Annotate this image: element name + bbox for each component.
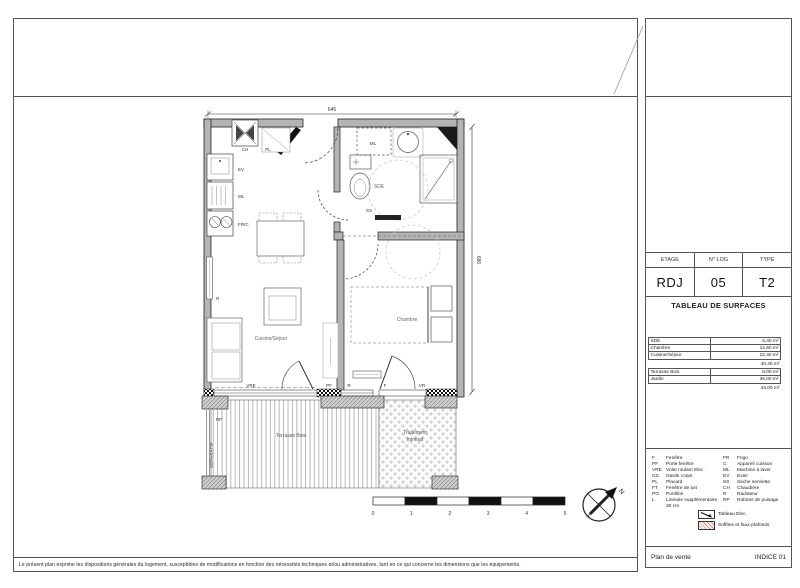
dimension-height-label: 680 <box>475 256 481 265</box>
table-row: SDE 5,40 m² <box>649 338 780 345</box>
svg-text:0: 0 <box>372 511 375 517</box>
legend-column-1: FFenêtre PFPorte fenêtre VREVolet roulan… <box>652 456 718 510</box>
etage-value: RDJ <box>646 268 695 296</box>
svg-text:2: 2 <box>448 511 451 517</box>
indice-label: INDICE 01 <box>755 554 786 561</box>
surfaces-subtotal: 40,40 m² <box>648 360 781 368</box>
label-mineral-1: Traitement <box>403 430 427 436</box>
surfaces-title: TABLEAU DE SURFACES <box>646 301 791 310</box>
legend-symbol-tableau-elec: Tableau Elec. <box>698 510 790 519</box>
floor-plan-sheet: 645 680 <box>0 0 800 588</box>
legend-symbol-soffites: Soffites et faux-plafonds <box>698 521 790 530</box>
table-row: Cuisine/Séjour 22,40 m² <box>649 352 780 359</box>
table-row: Chambre 12,60 m² <box>649 345 780 352</box>
label-mineral-2: minéral <box>407 437 423 443</box>
etage-label: ETAGE <box>646 253 695 267</box>
floor-plan-svg: 645 680 <box>14 97 637 557</box>
svg-text:3: 3 <box>487 511 490 517</box>
soffit-hatch-icon <box>698 521 715 530</box>
bedroom-door-arc <box>344 244 378 279</box>
scale-bar <box>373 497 565 505</box>
living-room-furniture <box>207 213 339 382</box>
svg-text:1: 1 <box>410 511 413 517</box>
svg-text:4: 4 <box>525 511 528 517</box>
label-radiator-living: R <box>216 296 220 301</box>
bedroom-furniture <box>351 225 452 378</box>
type-value: T2 <box>743 268 791 296</box>
label-shutter-vre: VRE <box>246 383 255 388</box>
legend-panel: FFenêtre PFPorte fenêtre VREVolet roulan… <box>645 448 792 547</box>
title-block-logo-frame <box>645 96 792 253</box>
disclaimer-text: Le présent plan exprime les dispositions… <box>19 562 521 568</box>
kitchen-fixtures <box>207 120 290 236</box>
interior-walls <box>334 127 464 390</box>
north-arrow-icon <box>583 487 617 521</box>
electrical-panel-icon <box>698 510 715 519</box>
label-fridge-cooker: FR/C <box>238 222 249 227</box>
label-shutter-vr: VR <box>419 383 426 388</box>
table-row: Jardin 36,00 m² <box>649 376 780 383</box>
type-label: TYPE <box>743 253 791 267</box>
shower-room-door-arc <box>318 190 348 220</box>
table-row: Terrasse Bois 8,00 m² <box>649 369 780 376</box>
log-value: 05 <box>695 268 744 296</box>
surfaces-ext-group: Terrasse Bois 8,00 m² Jardin 36,00 m² <box>648 368 781 384</box>
surfaces-panel: TABLEAU DE SURFACES SDE 5,40 m² Chambre … <box>645 296 792 449</box>
info-header-row: ETAGE N° LOG TYPE <box>646 253 791 268</box>
label-towel-dryer: SS <box>366 208 372 213</box>
wall-corner-chamfer <box>437 127 457 150</box>
svg-text:5: 5 <box>564 511 567 517</box>
legend-column-2: FRFrigo CAppareil cuisson MLMachine à la… <box>723 456 791 504</box>
info-value-row: RDJ 05 T2 <box>646 268 791 296</box>
title-block-top-frame <box>645 18 792 97</box>
disclaimer-bar: Le présent plan exprime les dispositions… <box>13 557 638 572</box>
header-frame <box>13 18 638 97</box>
label-closet: PL <box>265 147 271 152</box>
surfaces-table: SDE 5,40 m² Chambre 12,60 m² Cuisine/Séj… <box>648 337 781 392</box>
label-washer-sde: ML <box>370 141 377 146</box>
dimension-width-label: 645 <box>328 107 337 113</box>
scale-labels: 0 1 2 3 4 5 <box>372 511 567 517</box>
title-block-info: ETAGE N° LOG TYPE RDJ 05 T2 <box>645 252 792 297</box>
label-french-door: PF <box>326 383 332 388</box>
label-separator: SÉPARATIF <box>209 442 214 468</box>
label-radiator-bedroom: R <box>347 383 351 388</box>
plan-type-label: Plan de vente <box>651 554 691 561</box>
label-window-f: F <box>384 383 387 388</box>
legend-symbols: Tableau Elec. Soffites et faux-plafonds <box>698 510 790 532</box>
log-label: N° LOG <box>695 253 744 267</box>
label-sink: EV <box>238 167 245 172</box>
shower-room-fixtures <box>350 128 457 220</box>
label-boiler: CH <box>242 147 249 152</box>
north-label: N <box>617 488 626 496</box>
title-block-footer: Plan de vente INDICE 01 <box>645 546 792 568</box>
surfaces-main-group: SDE 5,40 m² Chambre 12,60 m² Cuisine/Séj… <box>648 337 781 360</box>
dimension-right <box>470 124 475 395</box>
label-terrace: Terrasse Bois <box>276 433 307 439</box>
label-kitchen-living: Cuisine/Séjour <box>255 336 288 342</box>
drawing-area: 645 680 <box>13 96 638 558</box>
label-shower-room: SDE <box>374 184 385 190</box>
label-washer-kitchen: ML <box>238 194 245 199</box>
surfaces-total: 44,00 m² <box>648 384 781 392</box>
diagonal-mark <box>612 20 646 98</box>
label-tap-rp: RP <box>216 417 222 422</box>
label-bedroom: Chambre <box>397 317 418 323</box>
